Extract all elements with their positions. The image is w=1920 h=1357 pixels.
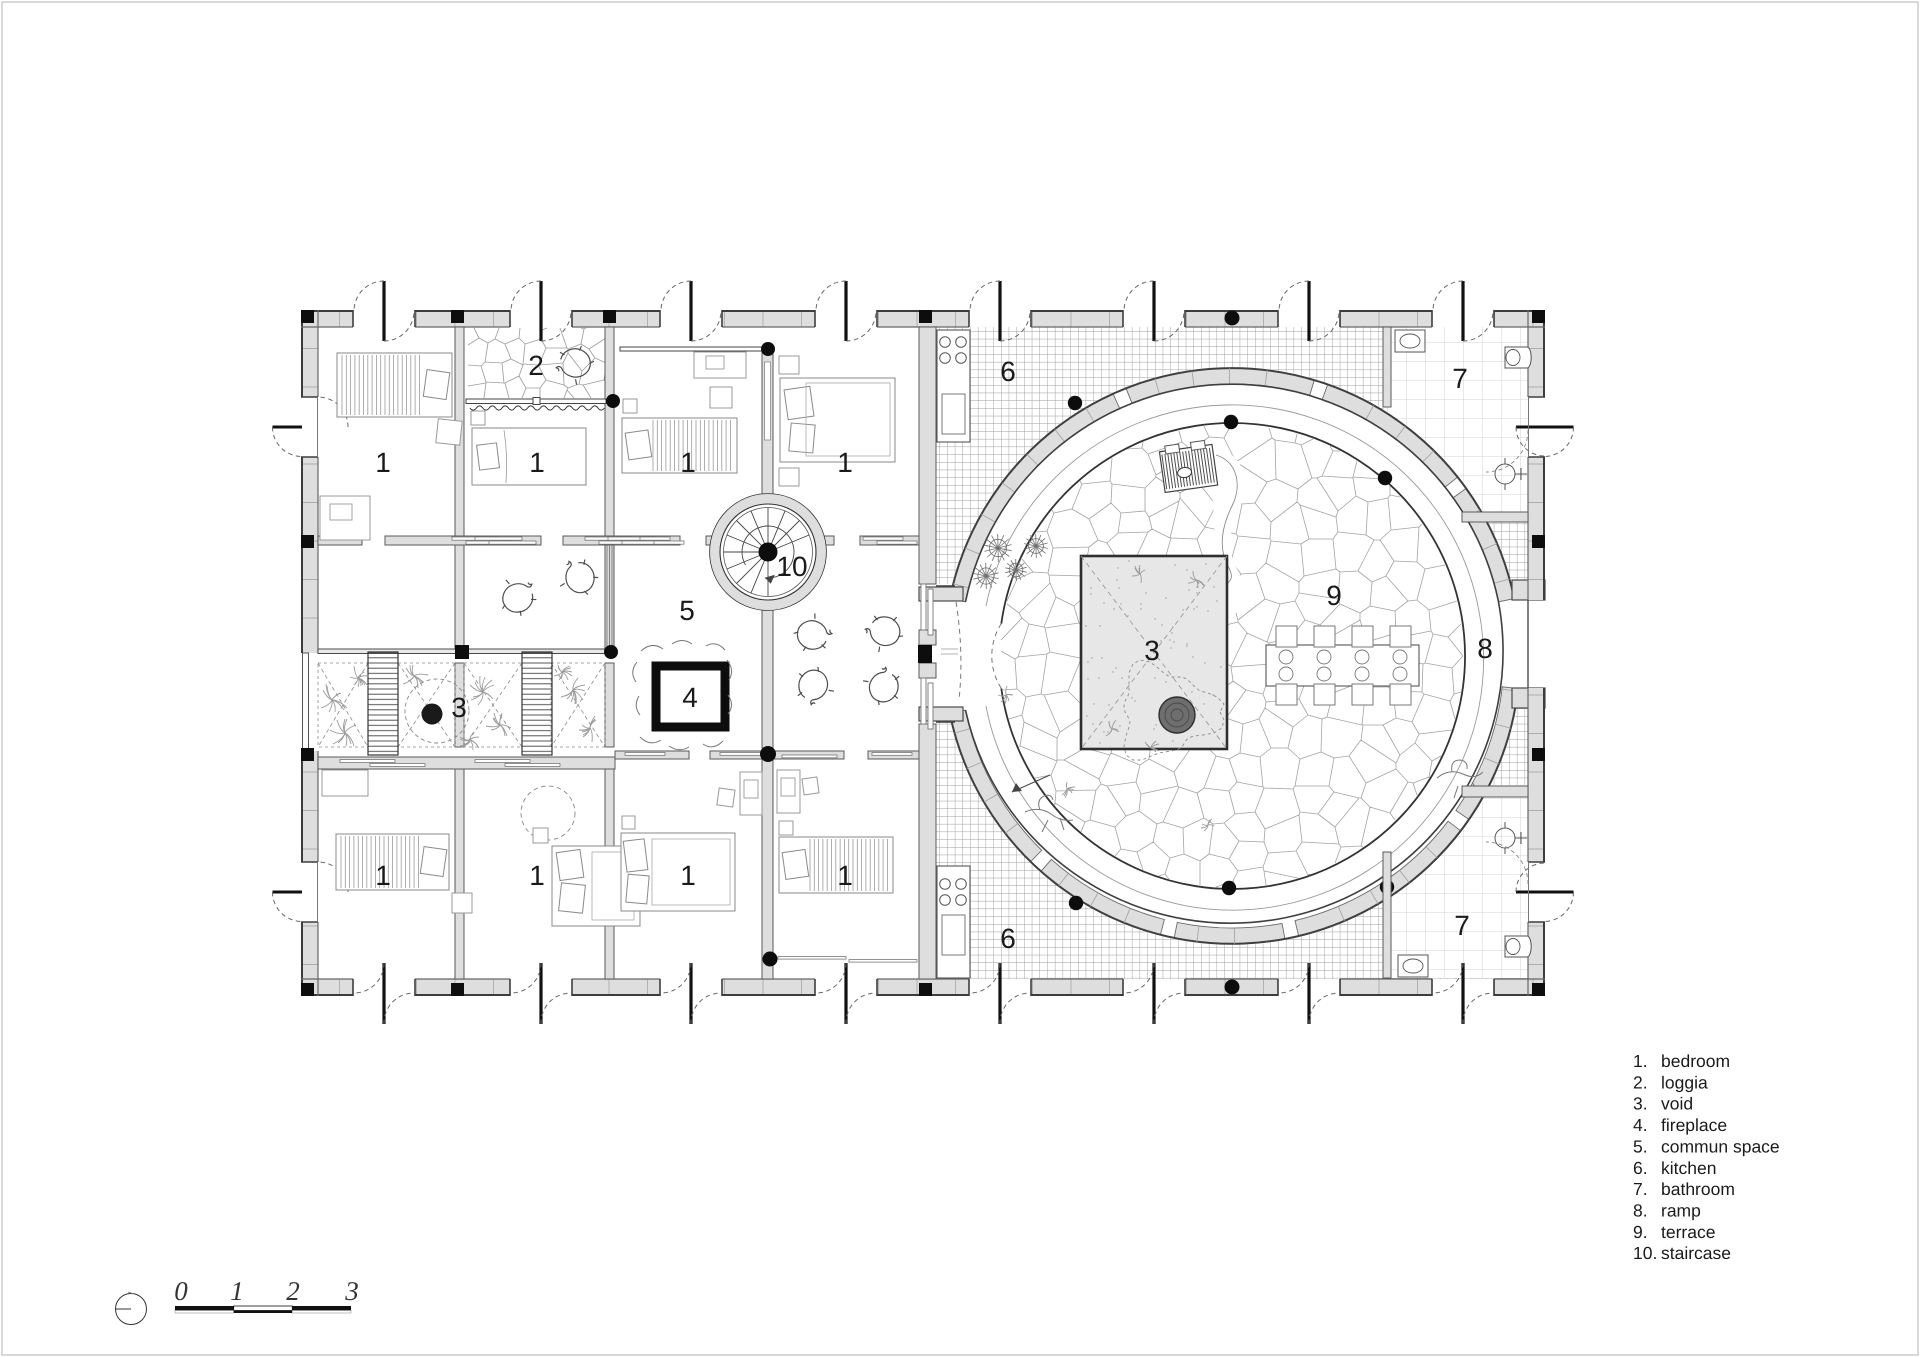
svg-text:1: 1	[837, 447, 853, 478]
svg-text:2: 2	[528, 350, 544, 381]
svg-text:10: 10	[776, 551, 807, 582]
svg-text:8: 8	[1477, 633, 1493, 664]
svg-text:7: 7	[1454, 910, 1470, 941]
svg-text:fireplace: fireplace	[1661, 1115, 1727, 1135]
svg-text:4: 4	[682, 682, 698, 713]
svg-text:3: 3	[451, 692, 467, 723]
svg-text:void: void	[1661, 1094, 1693, 1114]
svg-text:4.: 4.	[1633, 1115, 1648, 1135]
svg-text:9.: 9.	[1633, 1222, 1648, 1242]
svg-text:1: 1	[375, 447, 391, 478]
svg-text:2.: 2.	[1633, 1072, 1648, 1092]
svg-text:bathroom: bathroom	[1661, 1179, 1735, 1199]
svg-text:10.: 10.	[1633, 1243, 1657, 1263]
svg-text:1: 1	[375, 860, 391, 891]
svg-text:6: 6	[1000, 923, 1016, 954]
svg-text:commun space: commun space	[1661, 1136, 1780, 1156]
svg-text:1: 1	[680, 447, 696, 478]
svg-text:staircase: staircase	[1661, 1243, 1731, 1263]
svg-text:terrace: terrace	[1661, 1222, 1715, 1242]
svg-text:6: 6	[1000, 356, 1016, 387]
svg-text:5.: 5.	[1633, 1136, 1648, 1156]
svg-text:7: 7	[1452, 363, 1468, 394]
svg-text:6.: 6.	[1633, 1158, 1648, 1178]
svg-text:kitchen: kitchen	[1661, 1158, 1716, 1178]
svg-text:1: 1	[680, 860, 696, 891]
svg-text:1.: 1.	[1633, 1051, 1648, 1071]
svg-text:8.: 8.	[1633, 1201, 1648, 1221]
svg-text:1: 1	[837, 860, 853, 891]
svg-text:7.: 7.	[1633, 1179, 1648, 1199]
svg-text:3: 3	[1144, 635, 1160, 666]
svg-text:3: 3	[344, 1276, 359, 1306]
svg-text:3.: 3.	[1633, 1094, 1648, 1114]
svg-text:1: 1	[529, 447, 545, 478]
svg-text:ramp: ramp	[1661, 1201, 1701, 1221]
svg-text:2: 2	[286, 1276, 300, 1306]
svg-text:1: 1	[230, 1276, 244, 1306]
svg-text:5: 5	[679, 595, 695, 626]
svg-text:9: 9	[1326, 580, 1342, 611]
svg-text:1: 1	[529, 860, 545, 891]
svg-text:loggia: loggia	[1661, 1072, 1708, 1092]
svg-text:0: 0	[174, 1276, 188, 1306]
svg-text:bedroom: bedroom	[1661, 1051, 1730, 1071]
